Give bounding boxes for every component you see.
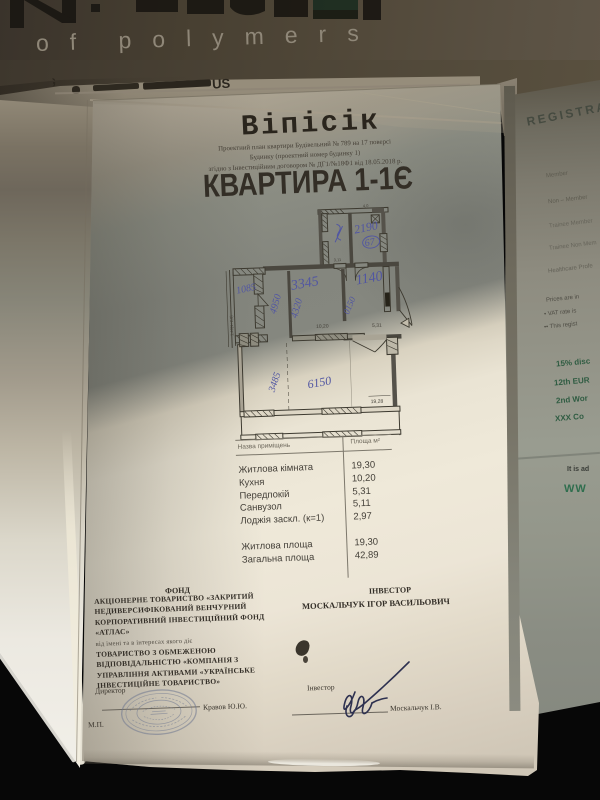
svg-text:4320: 4320: [289, 297, 305, 319]
svg-text:2190: 2190: [353, 218, 379, 236]
svg-text:3345: 3345: [289, 274, 320, 294]
svg-text:1085: 1085: [235, 282, 257, 297]
svg-text:3,11: 3,11: [334, 257, 342, 262]
svg-text:19,28: 19,28: [371, 399, 384, 405]
svg-text:3485: 3485: [266, 371, 283, 394]
svg-text:4,0: 4,0: [363, 203, 370, 208]
svg-text:6150: 6150: [306, 373, 332, 391]
svg-text:5,31: 5,31: [372, 323, 382, 329]
svg-text:10,20: 10,20: [316, 324, 329, 330]
svg-text:4950: 4950: [268, 293, 284, 315]
svg-text:1,49(1+2,0): 1,49(1+2,0): [229, 315, 235, 336]
svg-text:1140: 1140: [355, 269, 384, 288]
